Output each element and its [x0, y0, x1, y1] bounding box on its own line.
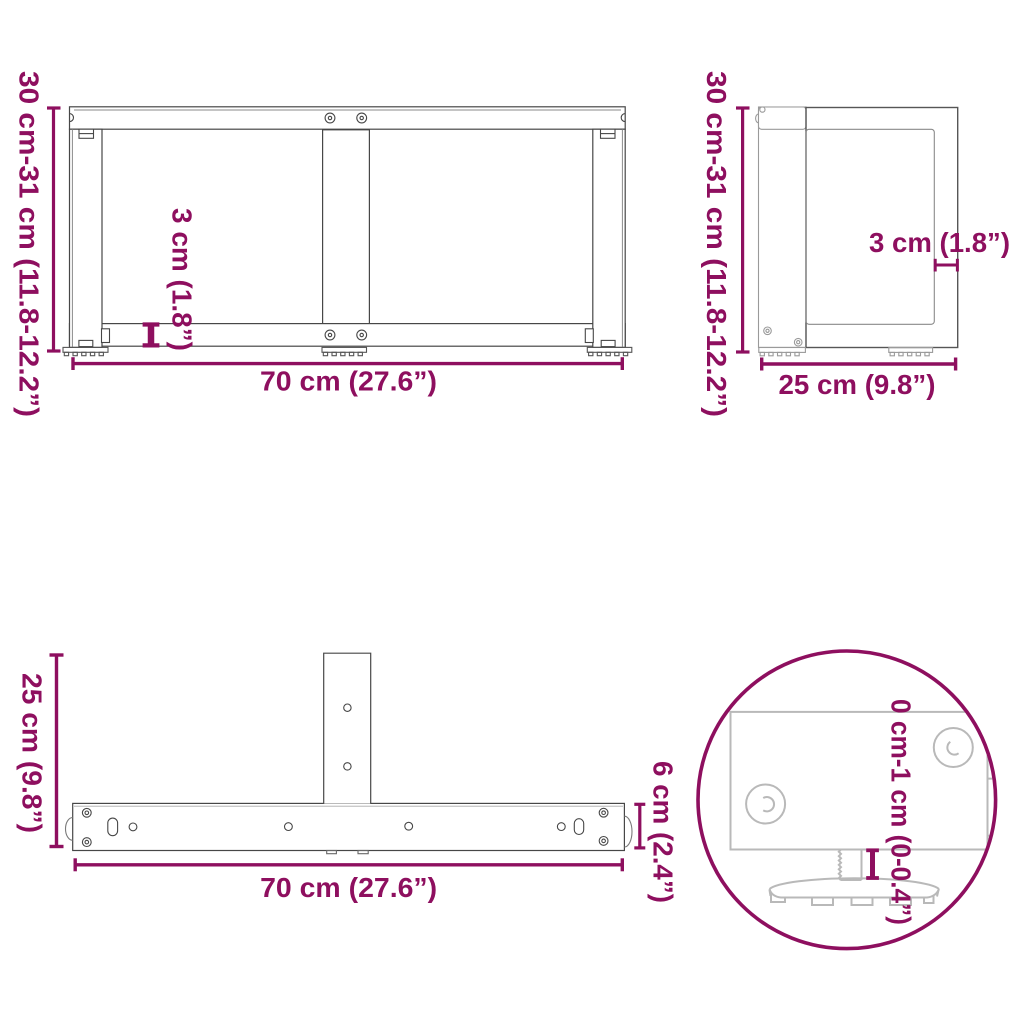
svg-text:3 cm (1.8”): 3 cm (1.8”) [869, 227, 1010, 258]
svg-text:3 cm (1.8”): 3 cm (1.8”) [166, 208, 197, 351]
svg-text:70 cm (27.6”): 70 cm (27.6”) [260, 366, 437, 397]
svg-text:70 cm (27.6”): 70 cm (27.6”) [260, 872, 437, 903]
svg-text:30 cm-31 cm (11.8-12.2”): 30 cm-31 cm (11.8-12.2”) [701, 71, 732, 417]
svg-text:0 cm-1 cm (0-0.4”): 0 cm-1 cm (0-0.4”) [886, 699, 917, 925]
svg-text:30 cm-31 cm (11.8-12.2”): 30 cm-31 cm (11.8-12.2”) [14, 71, 45, 417]
svg-text:25 cm (9.8”): 25 cm (9.8”) [779, 369, 936, 400]
svg-text:25 cm (9.8”): 25 cm (9.8”) [17, 673, 48, 833]
svg-text:6 cm (2.4”): 6 cm (2.4”) [648, 761, 679, 903]
